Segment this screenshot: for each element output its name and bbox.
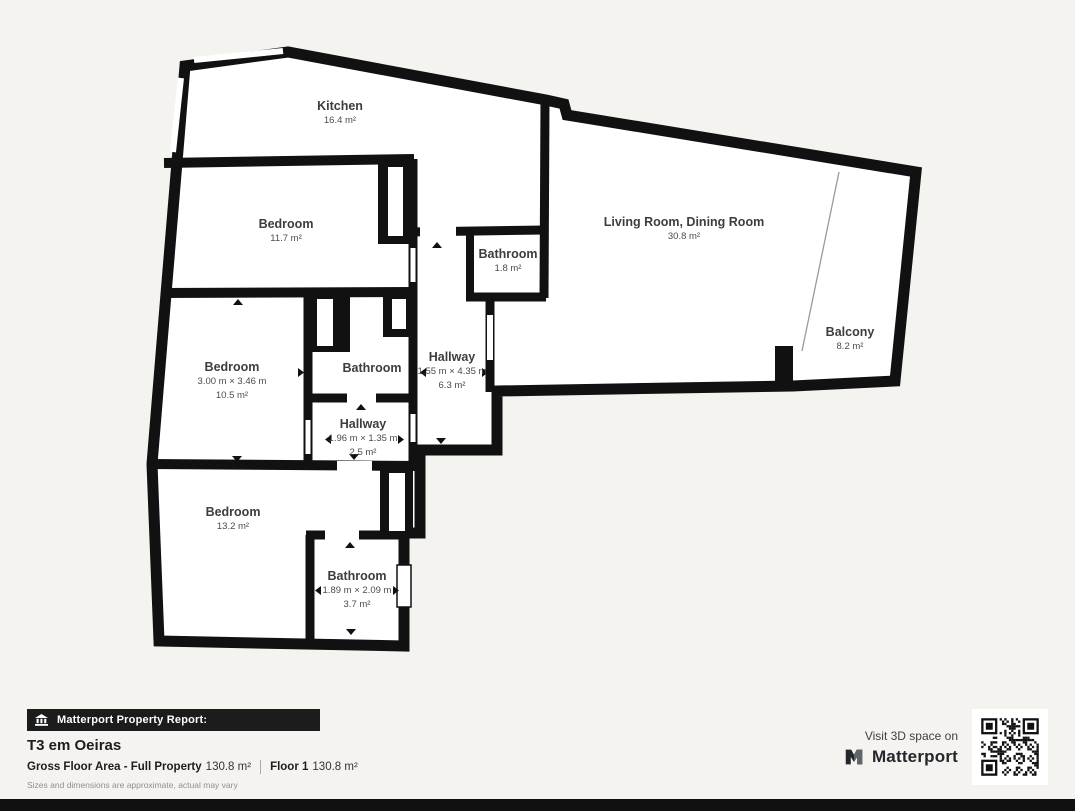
visit-3d-label: Visit 3D space on <box>843 729 958 743</box>
gross-floor-area-label: Gross Floor Area - Full Property <box>27 761 202 773</box>
bathroom3-window <box>397 565 411 607</box>
qr-code <box>972 709 1048 785</box>
floor-plan-page: Kitchen 16.4 m² Bedroom 11.7 m² Bathroom… <box>0 0 1075 811</box>
visit-3d-block: Visit 3D space on Matterport <box>843 729 958 768</box>
balcony-pillar <box>775 346 793 387</box>
property-title: T3 em Oeiras <box>27 737 121 754</box>
bedroom3-door-gap <box>337 461 372 471</box>
stats-divider <box>260 760 261 774</box>
matterport-brand-text: Matterport <box>872 747 958 767</box>
midbath-door-gap <box>347 393 376 403</box>
gross-floor-area-value: 130.8 m² <box>206 761 251 773</box>
floor-plan-svg <box>0 0 1075 811</box>
floor-label: Floor 1 <box>270 761 308 773</box>
report-header-bar: Matterport Property Report: <box>27 709 320 731</box>
disclaimer-text: Sizes and dimensions are approximate, ac… <box>27 780 238 790</box>
bathroom3-door-gap <box>325 530 359 540</box>
kitchen-door-gap <box>420 226 456 237</box>
floor-value: 130.8 m² <box>312 761 357 773</box>
matterport-logo-icon <box>843 746 865 768</box>
building-icon <box>35 714 48 726</box>
floor-area-stats: Gross Floor Area - Full Property 130.8 m… <box>27 760 358 774</box>
report-header-label: Matterport Property Report: <box>57 714 207 726</box>
floor-area <box>152 52 916 646</box>
bottom-black-bar <box>0 799 1075 811</box>
